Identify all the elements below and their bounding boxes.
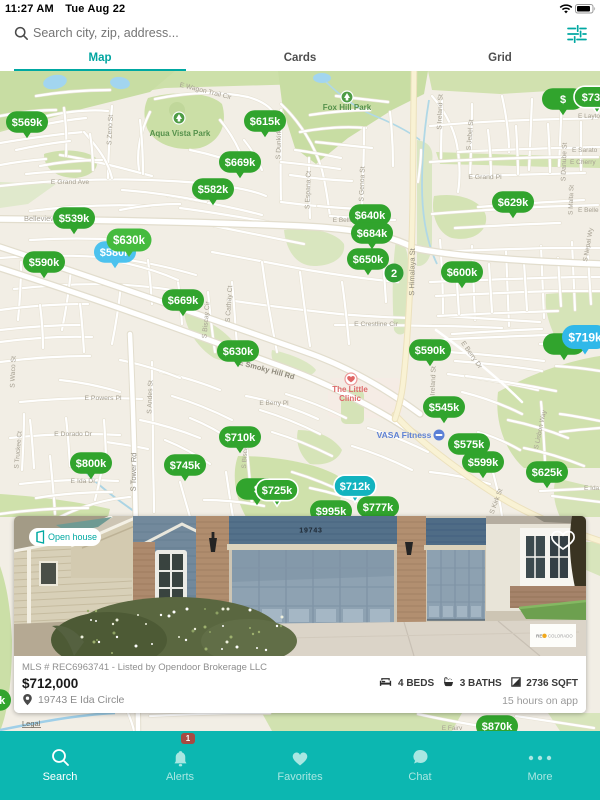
svg-text:$650k: $650k: [353, 254, 384, 266]
svg-text:S Tower Rd: S Tower Rd: [129, 453, 139, 492]
svg-text:$625k: $625k: [532, 467, 563, 479]
svg-text:$569k: $569k: [12, 117, 43, 129]
svg-text:E Grand Ave: E Grand Ave: [51, 179, 90, 186]
svg-text:$575k: $575k: [454, 439, 485, 451]
svg-text:E Powers Pl: E Powers Pl: [84, 395, 122, 402]
svg-text:$777k: $777k: [363, 502, 394, 514]
svg-text:$630k: $630k: [113, 235, 146, 247]
svg-text:$599k: $599k: [468, 457, 499, 469]
svg-text:2: 2: [391, 268, 397, 280]
svg-text:RE: RE: [536, 634, 542, 639]
svg-text:$582k: $582k: [198, 184, 229, 196]
svg-text:$669k: $669k: [225, 157, 256, 169]
svg-text:Legal: Legal: [22, 719, 41, 728]
svg-text:VASA Fitness: VASA Fitness: [377, 430, 432, 440]
svg-text:$600k: $600k: [0, 695, 6, 707]
svg-text:$640k: $640k: [355, 210, 386, 222]
svg-text:E Sarato: E Sarato: [572, 147, 598, 154]
svg-text:S Himalaya St: S Himalaya St: [407, 247, 417, 296]
svg-text:$590k: $590k: [29, 257, 60, 269]
svg-text:$710k: $710k: [225, 432, 256, 444]
svg-text:$669k: $669k: [168, 295, 199, 307]
svg-text:S Espana Ct: S Espana Ct: [304, 171, 312, 209]
svg-text:S Genoa St: S Genoa St: [358, 166, 366, 201]
svg-text:Aqua Vista Park: Aqua Vista Park: [150, 129, 211, 138]
svg-text:$590k: $590k: [415, 345, 446, 357]
svg-text:$800k: $800k: [76, 458, 107, 470]
svg-text:E Ida Av: E Ida Av: [584, 485, 600, 492]
svg-text:The Little: The Little: [332, 385, 368, 394]
svg-text:S Danube St: S Danube St: [560, 142, 568, 181]
svg-text:$545k: $545k: [429, 402, 460, 414]
svg-text:19743: 19743: [299, 528, 322, 535]
svg-text:$719k: $719k: [568, 330, 600, 344]
svg-text:$539k: $539k: [59, 213, 90, 225]
svg-text:$: $: [560, 94, 566, 106]
svg-text:$745k: $745k: [170, 460, 201, 472]
svg-text:COLORADO: COLORADO: [548, 634, 573, 639]
svg-text:E Ida Dr: E Ida Dr: [71, 478, 97, 485]
svg-text:E Cherry: E Cherry: [570, 159, 596, 166]
svg-text:Fox Hill Park: Fox Hill Park: [323, 103, 372, 112]
svg-text:S Andes St: S Andes St: [146, 380, 154, 414]
svg-text:E Grand Pl: E Grand Pl: [468, 174, 502, 181]
svg-text:E Belle: E Belle: [578, 207, 599, 214]
svg-text:$870k: $870k: [482, 721, 513, 731]
svg-text:$730k: $730k: [582, 92, 600, 104]
svg-text:Open house: Open house: [48, 532, 97, 542]
svg-text:Clinic: Clinic: [339, 394, 361, 403]
svg-text:$600k: $600k: [447, 267, 478, 279]
svg-text:$712k: $712k: [340, 481, 371, 493]
svg-text:E Berry Pl: E Berry Pl: [259, 400, 289, 407]
svg-text:S Ireland St: S Ireland St: [436, 94, 444, 130]
svg-text:$725k: $725k: [262, 485, 293, 497]
svg-text:E Crestline Cir: E Crestline Cir: [354, 321, 399, 328]
svg-text:S Waco St: S Waco St: [9, 356, 17, 388]
svg-text:$684k: $684k: [357, 228, 388, 240]
svg-text:$630k: $630k: [223, 346, 254, 358]
svg-text:$629k: $629k: [498, 197, 529, 209]
svg-text:$615k: $615k: [250, 116, 281, 128]
svg-text:S Malta St: S Malta St: [567, 185, 575, 215]
svg-text:E Dorado Dr: E Dorado Dr: [54, 431, 93, 438]
